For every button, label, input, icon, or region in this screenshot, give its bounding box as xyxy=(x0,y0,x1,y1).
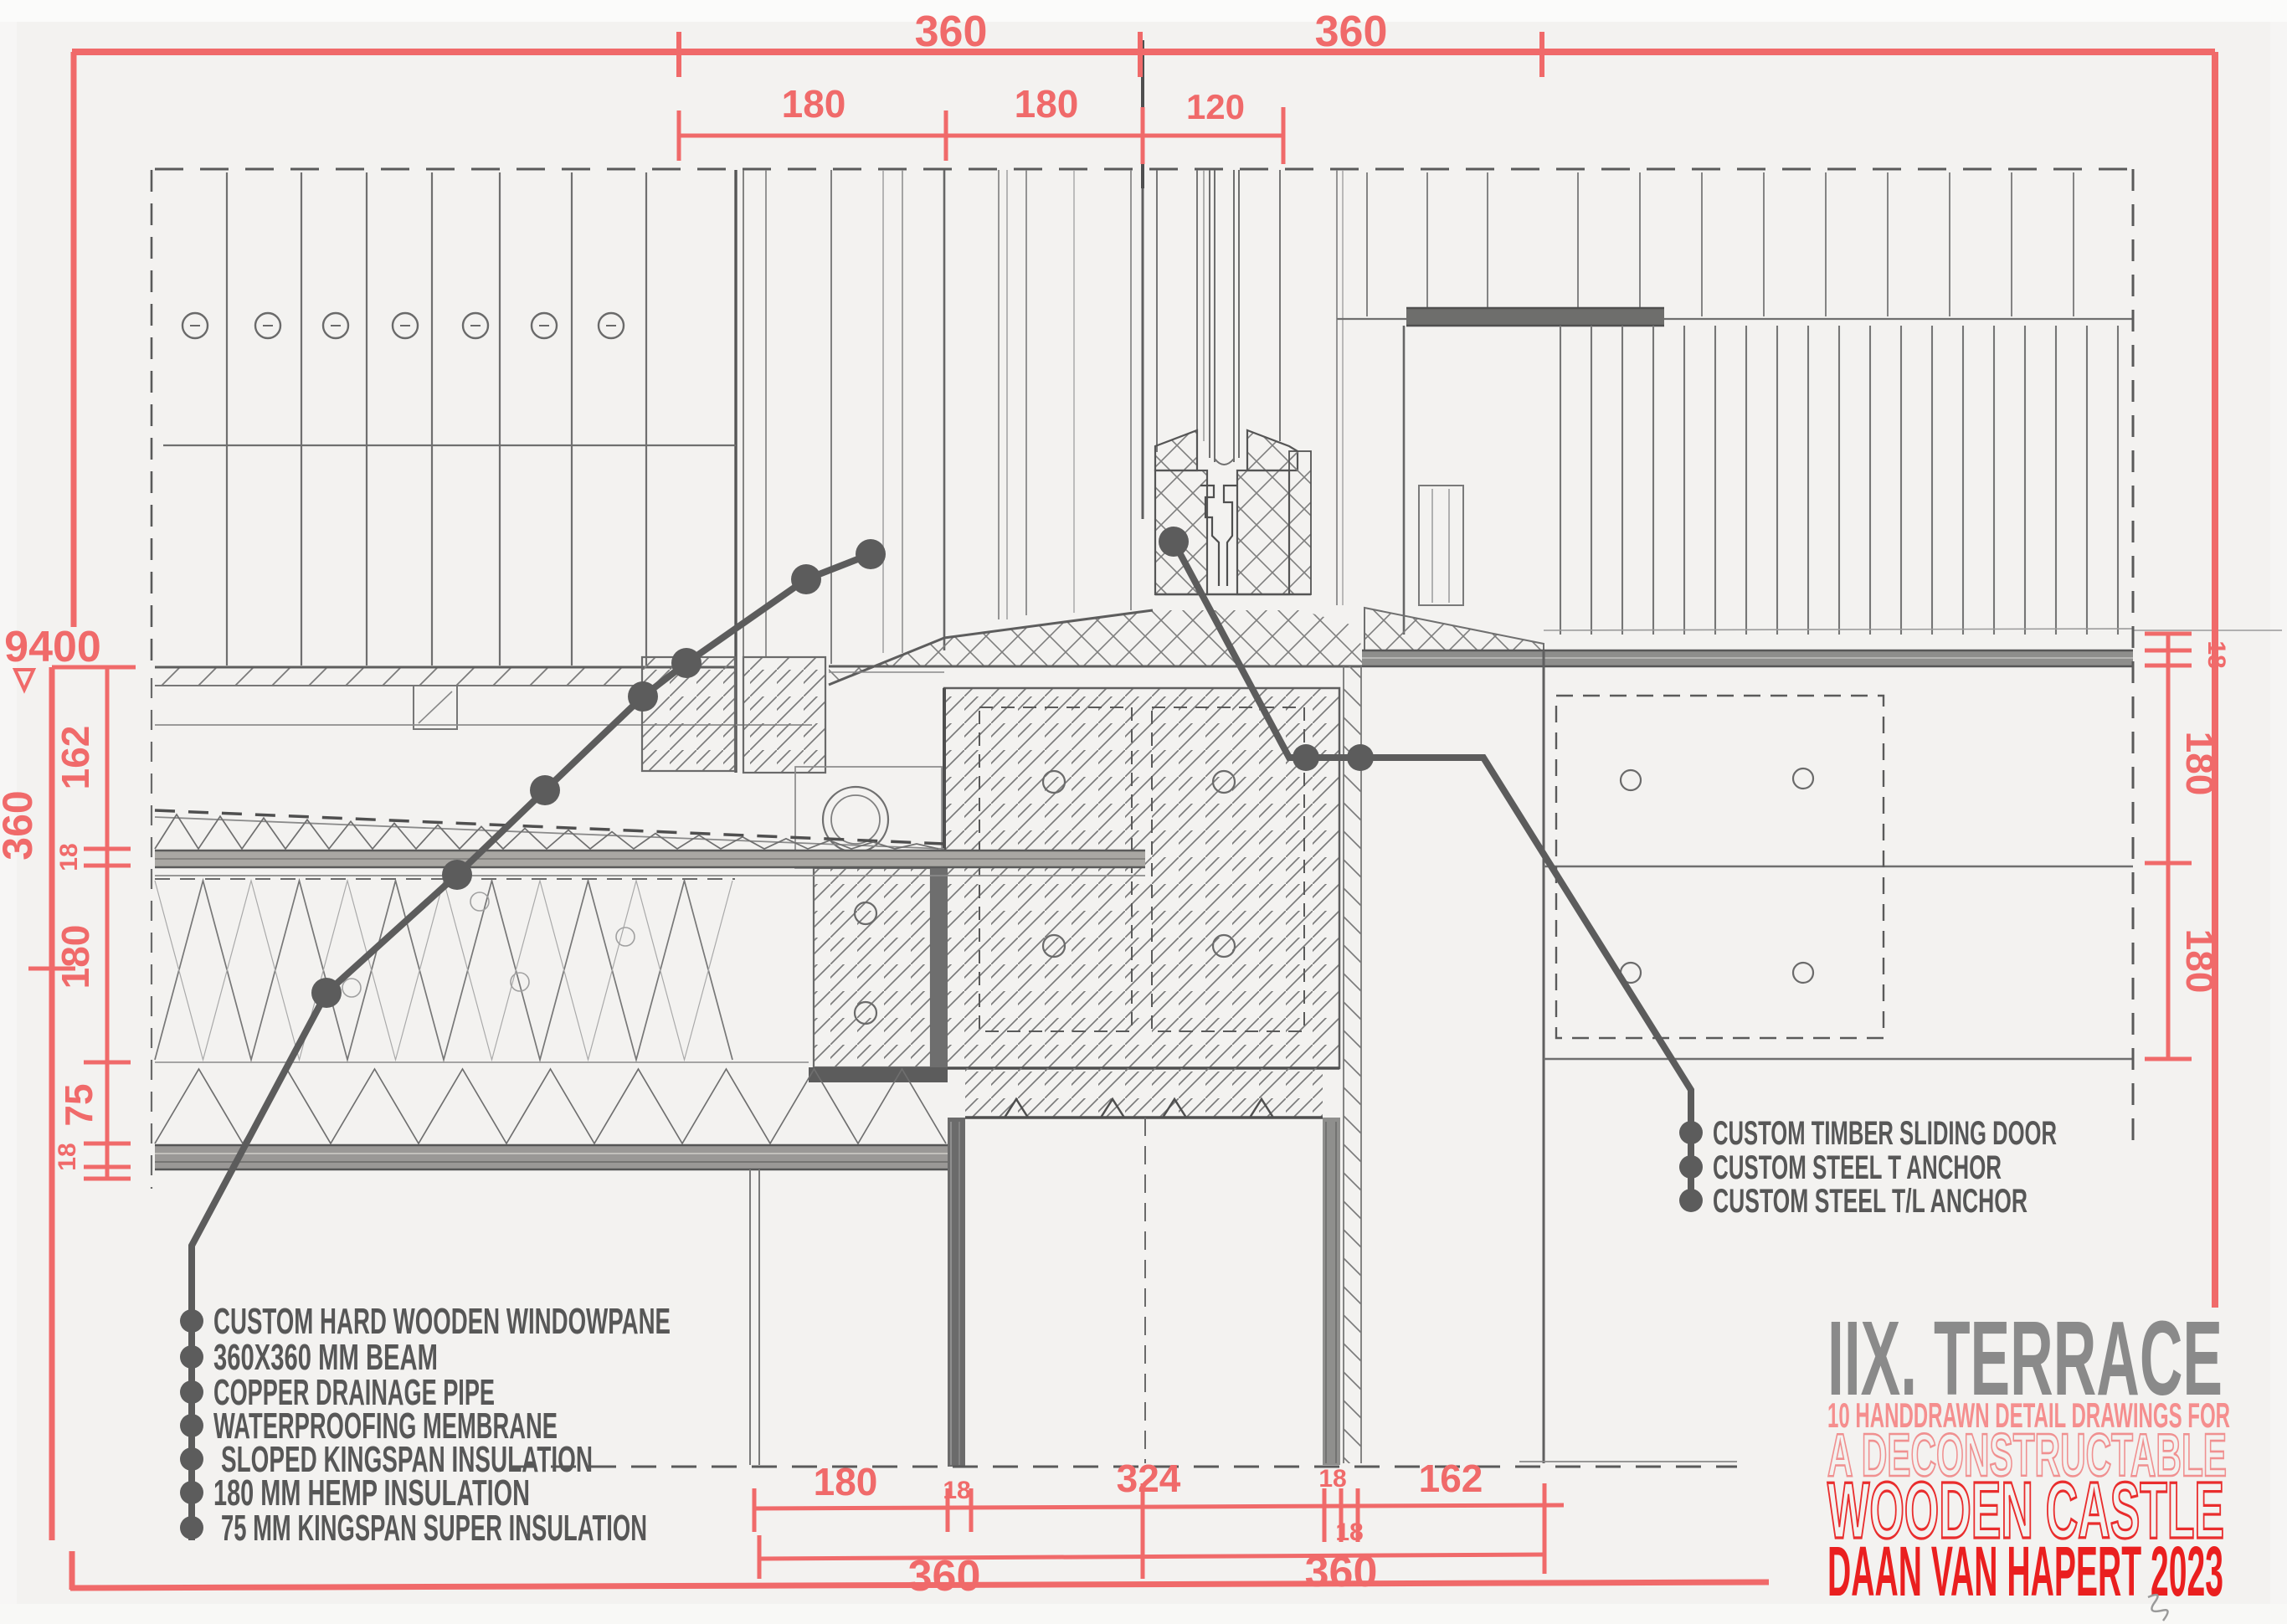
svg-text:CUSTOM TIMBER SLIDING DOOR: CUSTOM TIMBER SLIDING DOOR xyxy=(1713,1115,2057,1152)
svg-text:18: 18 xyxy=(54,1143,81,1170)
svg-text:324: 324 xyxy=(1117,1457,1181,1500)
svg-text:180: 180 xyxy=(2178,732,2222,796)
svg-text:180: 180 xyxy=(782,82,846,126)
svg-text:9400: 9400 xyxy=(4,623,101,671)
svg-text:162: 162 xyxy=(54,726,97,790)
svg-text:180: 180 xyxy=(2178,929,2222,994)
svg-text:360: 360 xyxy=(1315,8,1388,56)
svg-text:CUSTOM HARD WOODEN WINDOWPANE: CUSTOM HARD WOODEN WINDOWPANE xyxy=(213,1301,671,1342)
svg-text:75: 75 xyxy=(57,1083,100,1126)
svg-text:CUSTOM STEEL T/L ANCHOR: CUSTOM STEEL T/L ANCHOR xyxy=(1713,1183,2027,1220)
svg-text:120: 120 xyxy=(1186,87,1245,126)
svg-text:18: 18 xyxy=(1318,1465,1346,1493)
svg-text:180: 180 xyxy=(814,1460,878,1503)
svg-text:DAAN VAN HAPERT 2023: DAAN VAN HAPERT 2023 xyxy=(1827,1532,2223,1611)
svg-text:360: 360 xyxy=(0,790,41,860)
svg-text:CUSTOM STEEL T ANCHOR: CUSTOM STEEL T ANCHOR xyxy=(1713,1149,2002,1186)
svg-text:18: 18 xyxy=(1335,1519,1363,1546)
svg-text:360: 360 xyxy=(908,1552,981,1601)
svg-text:180: 180 xyxy=(1015,82,1079,126)
svg-text:18: 18 xyxy=(2202,640,2230,668)
svg-text:162: 162 xyxy=(1419,1457,1483,1500)
svg-text:18: 18 xyxy=(55,843,83,871)
svg-text:360: 360 xyxy=(915,8,988,56)
svg-text:360: 360 xyxy=(1305,1548,1378,1596)
svg-text:75 MM KINGSPAN SUPER INSULATIO: 75 MM KINGSPAN SUPER INSULATION xyxy=(221,1508,647,1549)
svg-text:180: 180 xyxy=(54,925,97,989)
svg-text:18: 18 xyxy=(943,1477,970,1504)
